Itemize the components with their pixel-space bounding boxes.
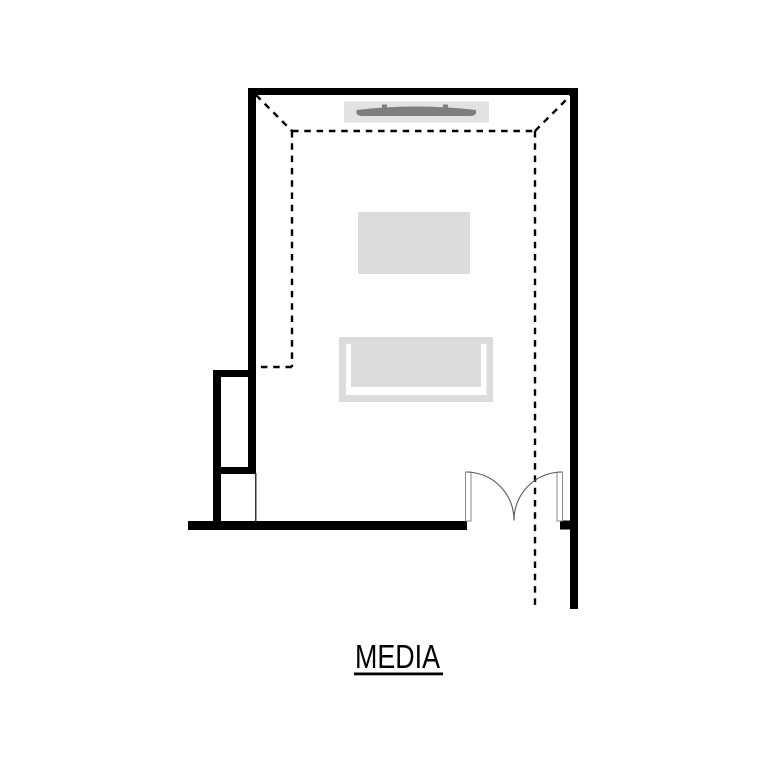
svg-text:MEDIA: MEDIA [355, 638, 440, 675]
